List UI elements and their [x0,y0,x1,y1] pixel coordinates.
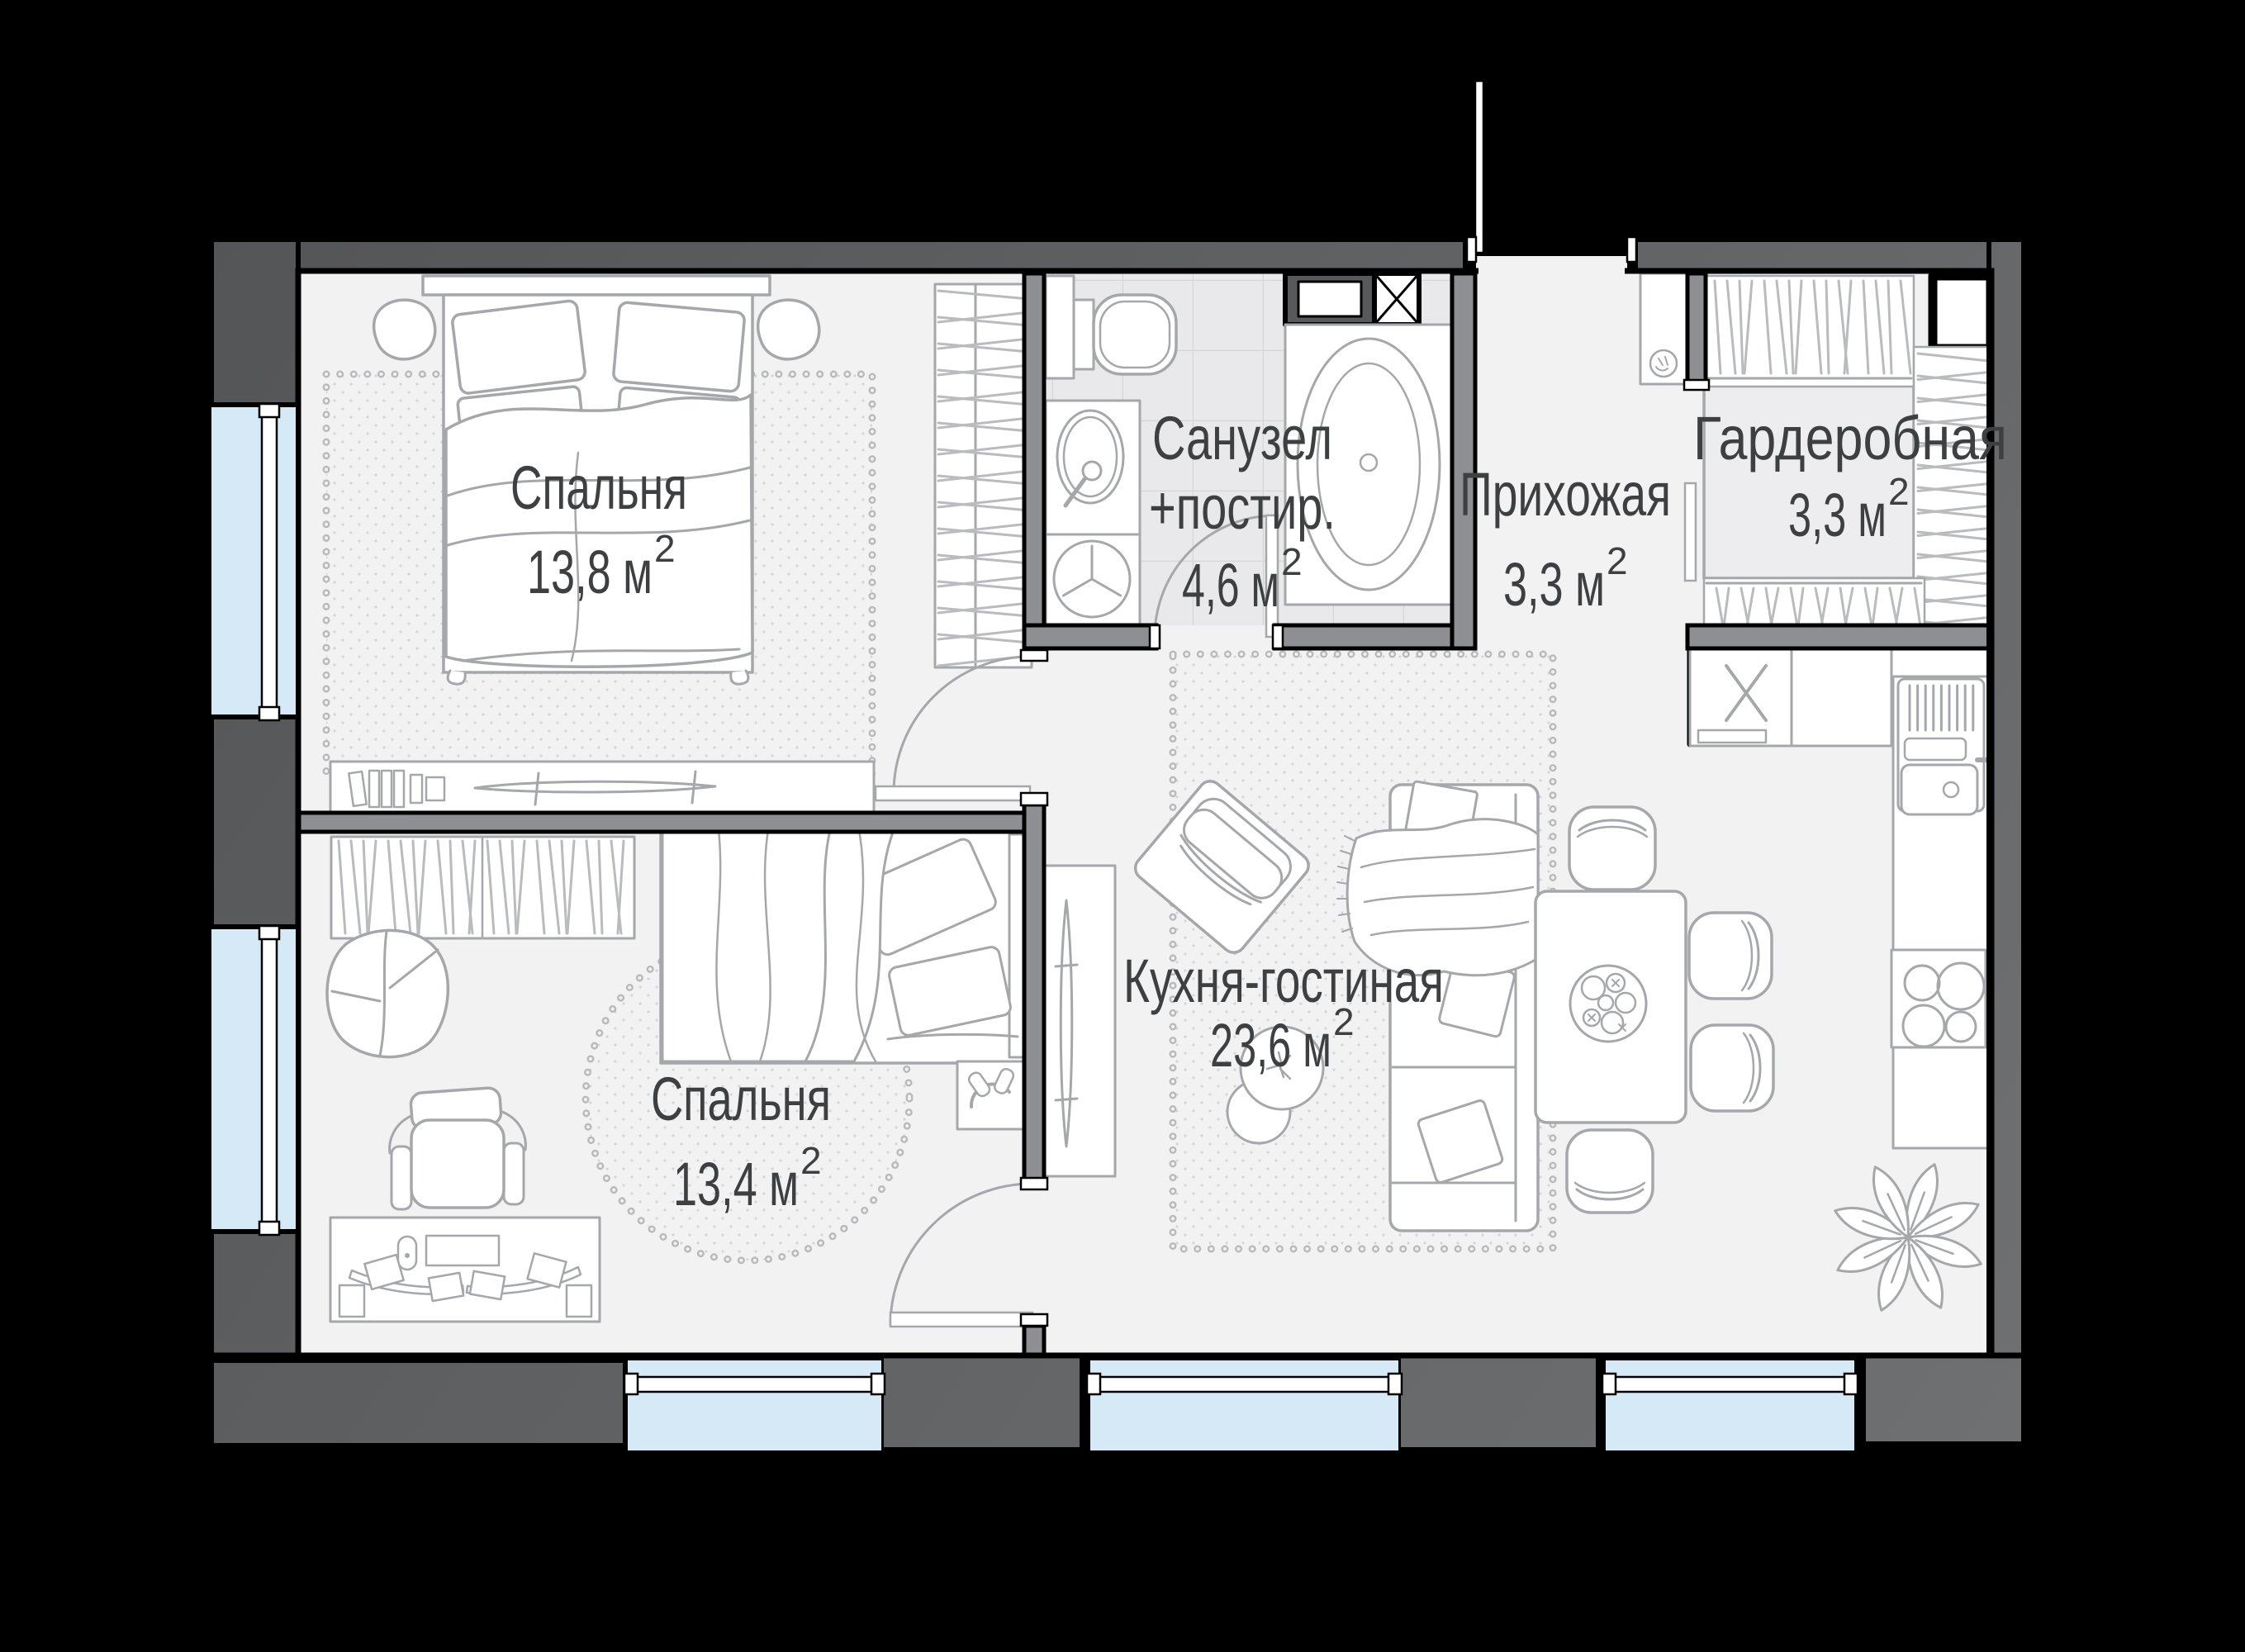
svg-text:Спальня: Спальня [510,453,687,522]
svg-text:4,6 м: 4,6 м [1182,551,1279,619]
svg-text:Спальня: Спальня [651,1065,831,1133]
svg-text:13,8 м: 13,8 м [527,538,653,606]
svg-text:Кухня-гостиная: Кухня-гостиная [1123,947,1444,1015]
svg-text:2: 2 [1333,1000,1355,1043]
svg-text:2: 2 [654,527,676,570]
svg-text:+постир.: +постир. [1149,473,1336,542]
svg-text:23,6 м: 23,6 м [1210,1011,1331,1080]
svg-text:Прихожая: Прихожая [1459,460,1671,529]
svg-text:3,3 м: 3,3 м [1503,550,1605,619]
svg-text:Гардеробная: Гардеробная [1693,404,2007,472]
svg-text:Санузел: Санузел [1152,404,1332,472]
svg-text:2: 2 [1888,470,1910,513]
svg-text:2: 2 [800,1139,822,1182]
svg-text:3,3 м: 3,3 м [1788,481,1887,549]
svg-text:13,4 м: 13,4 м [673,1150,799,1218]
svg-text:2: 2 [1281,540,1303,583]
svg-text:2: 2 [1607,539,1628,582]
